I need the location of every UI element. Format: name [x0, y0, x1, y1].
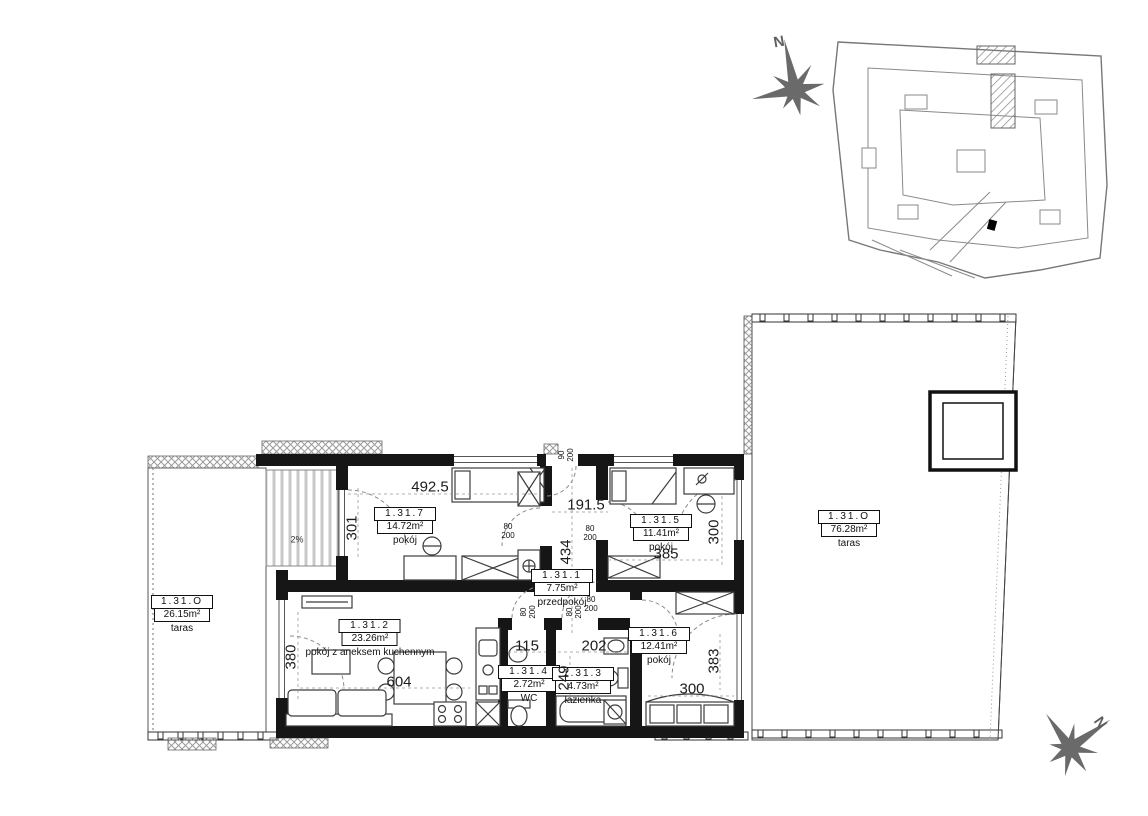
door-size-entrance: 90 200 — [557, 448, 575, 461]
door-height: 200 — [583, 533, 596, 542]
room-area: 2.72m² — [501, 679, 557, 692]
room-area: 11.41m² — [633, 528, 689, 541]
door-size-room6: 80 200 — [584, 595, 597, 613]
door-height: 200 — [574, 605, 583, 618]
furniture-hall — [518, 472, 540, 580]
room-area: 23.26m² — [342, 633, 398, 646]
floor-plan-sheet: N N 1.31.7 14.72m² pokój 1.31.1 7.75m² p… — [0, 0, 1148, 816]
door-width: 80 — [583, 524, 596, 533]
dim-room5-depth: 300 — [707, 519, 722, 544]
door-width: 80 — [584, 595, 597, 604]
room-area: 76.28m² — [821, 524, 877, 537]
dim-living-window: 380 — [284, 644, 299, 669]
room-id: 1.31.2 — [339, 619, 401, 633]
stove — [434, 702, 466, 726]
door-size-wc: 80 200 — [519, 605, 537, 618]
door-height: 200 — [584, 604, 597, 613]
dim-bath-width: 202 — [581, 639, 606, 654]
room-label-room7: 1.31.7 14.72m² pokój — [374, 507, 436, 547]
dim-room5-width: 385 — [653, 547, 678, 562]
dim-living-width: 604 — [386, 675, 411, 690]
room-name: WC — [521, 693, 538, 705]
room-id: 1.31.5 — [630, 514, 692, 528]
room-label-living: 1.31.2 23.26m² pokój z aneksem kuchennym — [306, 619, 435, 659]
compass-south-east-icon — [1026, 685, 1127, 785]
room-name: pokój z aneksem kuchennym — [306, 647, 435, 659]
room-label-room6: 1.31.6 12.41m² pokój — [628, 627, 690, 667]
room-label-terrace-left: 1.31.O 26.15m² taras — [151, 595, 213, 635]
room-label-wc: 1.31.4 2.72m² WC — [498, 665, 560, 705]
room-id: 1.31.6 — [628, 627, 690, 641]
room-area: 12.41m² — [631, 641, 687, 654]
door-width: 80 — [519, 605, 528, 618]
door-width: 80 — [565, 605, 574, 618]
room-area: 7.75m² — [534, 583, 590, 596]
room-id: 1.31.O — [818, 510, 880, 524]
dim-wc-width: 115 — [515, 639, 539, 654]
dim-loggia-slope: 2% — [290, 536, 303, 545]
door-height: 200 — [501, 531, 514, 540]
room-name: pokój — [393, 535, 417, 547]
room-label-terrace-right: 1.31.O 76.28m² taras — [818, 510, 880, 550]
room-name: pokój — [647, 655, 671, 667]
room-area: 14.72m² — [377, 521, 433, 534]
door-width: 80 — [501, 522, 514, 531]
door-height: 200 — [566, 448, 575, 461]
dim-hall-length: 434 — [559, 539, 574, 564]
door-width: 90 — [557, 448, 566, 461]
dim-room7-width: 492.5 — [411, 480, 449, 495]
door-size-bath: 80 200 — [565, 605, 583, 618]
dim-bath-depth: 249 — [557, 665, 572, 690]
room-id: 1.31.1 — [531, 569, 593, 583]
door-size-room7: 80 200 — [501, 522, 514, 540]
door-size-room5: 80 200 — [583, 524, 596, 542]
site-plan — [833, 42, 1107, 278]
room-name: taras — [838, 538, 860, 550]
room-id: 1.31.4 — [498, 665, 560, 679]
room-area: 26.15m² — [154, 609, 210, 622]
room-name: łazienka — [565, 695, 602, 707]
room-id: 1.31.O — [151, 595, 213, 609]
dim-room6-width: 300 — [679, 682, 704, 697]
door-height: 200 — [528, 605, 537, 618]
room-id: 1.31.7 — [374, 507, 436, 521]
dim-hall-width: 191.5 — [567, 498, 605, 513]
room-name: taras — [171, 623, 193, 635]
dim-room6-depth: 383 — [707, 648, 722, 673]
dim-room7-window: 301 — [345, 515, 360, 540]
